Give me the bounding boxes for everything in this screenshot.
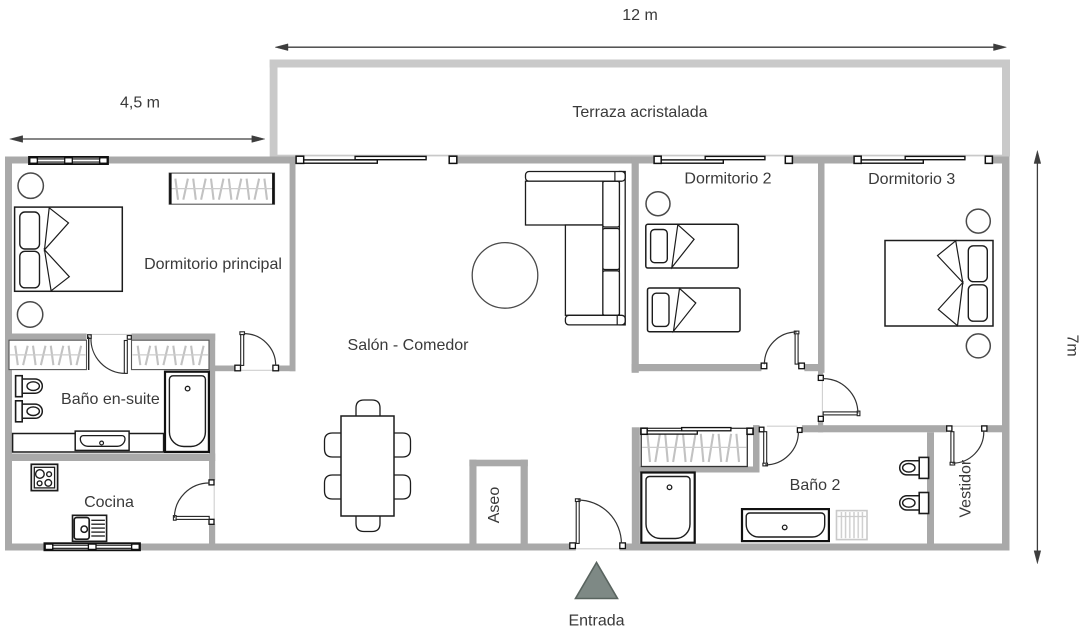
svg-text:Vestidor: Vestidor: [958, 459, 975, 517]
svg-text:Entrada: Entrada: [568, 613, 624, 630]
svg-text:Salón - Comedor: Salón - Comedor: [348, 337, 470, 354]
svg-text:Dormitorio 3: Dormitorio 3: [868, 171, 955, 188]
svg-text:Dormitorio 2: Dormitorio 2: [684, 171, 771, 188]
svg-text:4,5 m: 4,5 m: [120, 95, 160, 112]
svg-text:Cocina: Cocina: [84, 494, 134, 511]
svg-text:Dormitorio principal: Dormitorio principal: [144, 256, 282, 273]
svg-text:Baño en-suite: Baño en-suite: [61, 391, 160, 408]
svg-text:12 m: 12 m: [622, 7, 658, 24]
svg-text:Terraza acristalada: Terraza acristalada: [572, 104, 707, 121]
svg-text:Baño 2: Baño 2: [790, 477, 841, 494]
svg-text:Aseo: Aseo: [486, 487, 503, 524]
svg-text:7m: 7m: [1063, 334, 1080, 356]
